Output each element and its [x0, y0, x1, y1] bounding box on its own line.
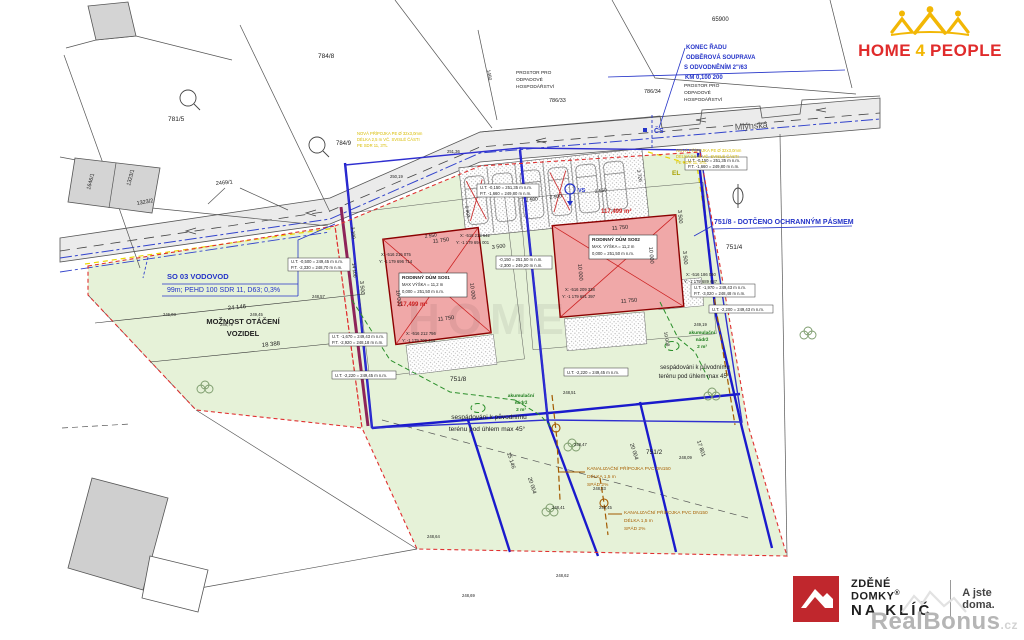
house-area-label: 117,499 m² [601, 208, 631, 215]
note-line: S ODVODNĚNÍM 2"/63 [684, 63, 748, 71]
note-line: terénu pod úhlem max 45° [449, 425, 526, 433]
note-line: DÉLKA 1,5 m [587, 473, 616, 480]
elevation-line: U.T. -1,970 = 249,43 m n.m. [694, 285, 746, 290]
note-line: ODBĚROVÁ SOUPRAVA [686, 53, 756, 61]
note-line: SPÁD 2% [624, 525, 646, 532]
elevation-line: P.T. -3,020 = 248,48 m n.m. [694, 291, 745, 296]
note-line: HOSPODÁŘSTVÍ [684, 95, 723, 103]
roof-icon [793, 576, 839, 622]
note-line: nádrž [696, 337, 709, 343]
note-line: HOSPODÁŘSTVÍ [516, 82, 555, 90]
note-line: ODPADOVÉ [516, 76, 543, 83]
note-line: akumulační [689, 330, 716, 336]
prostor-note-1: PROSTOR PRO ODPADOVÉ HOSPODÁŘSTVÍ [516, 70, 555, 90]
spot-elevation: 248,57 [312, 294, 325, 299]
note-line: terénu pod úhlem max 45° [659, 374, 730, 380]
parcel-label: 786/33 [549, 98, 566, 104]
house-spec: 0,000 = 251,50 m n.m. [592, 251, 634, 256]
coordinate-label: Y: -1 179 694 001 [456, 240, 490, 245]
logo-word-people: PEOPLE [930, 41, 1002, 60]
spot-elevation: 248,45 [599, 505, 612, 510]
note-line: 99m; PEHD 100 SDR 11, D63; 0,3% [167, 287, 280, 294]
elevation-line: -2,300 = 249,20 m n.m. [499, 263, 542, 268]
parcel-label: 2469/1 [216, 180, 233, 187]
parcel-label: 781/5 [168, 116, 185, 123]
logo-word-home: HOME [858, 41, 911, 60]
terrace-so02 [564, 312, 646, 351]
note-line: akumulační [508, 393, 535, 399]
coordinate-label: Y: -1 179 689 687 [684, 279, 718, 284]
note-line: NOVÁ PŘÍPOJKA PE Ø 32x3,0mm [676, 148, 742, 153]
elevation-line: U.T. -1,670 = 249,43 m n.m. [332, 334, 384, 339]
house-spec: MAX. VÝŠKA = 11,2 m [592, 244, 635, 249]
elevation-line: U.T. -0,500 = 249,45 m n.m. [291, 259, 343, 264]
coordinate-label: X: -516 215 075 [381, 252, 411, 257]
note-line: PE SDR 11, 3TL [357, 143, 388, 148]
spot-elevation: 248,51 [563, 390, 576, 395]
elevation-line: P.T. -1,660 = 249,80 m n.m. [480, 191, 531, 196]
cs-label: ČS [654, 126, 664, 135]
parcel-label: 784/9 [336, 141, 352, 147]
logo-word-4: 4 [916, 41, 926, 60]
parcel-label: 65900 [712, 17, 729, 23]
spot-elevation: 248,41 [552, 505, 565, 510]
parcel-label: 786/34 [644, 89, 661, 95]
coordinate-label: X: -516 209 338 [565, 287, 595, 292]
note-line: DÉLKA 2,5 m VČ. SVISLÉ ČÁSTI [676, 154, 739, 159]
prostor-note-2: PROSTOR PRO ODPADOVÉ HOSPODÁŘSTVÍ [684, 83, 723, 103]
note-line: ODPADOVÉ [684, 89, 711, 96]
spot-elevation: 248,64 [427, 534, 440, 539]
home4people-logo[interactable]: HOME 4 PEOPLE [850, 6, 1010, 61]
elevation-line: -0,150 = 251,50 m n.m. [499, 257, 542, 262]
parcel-label: 784/8 [318, 53, 335, 60]
note-line: DÉLKA 1,5 m [624, 517, 653, 524]
note-line: PROSTOR PRO [684, 83, 720, 89]
house-spec: 0,000 = 251,50 m n.m. [402, 289, 444, 294]
note-line: PROSTOR PRO [516, 70, 552, 76]
coordinate-label: X: -516 186 060 [686, 272, 716, 277]
elevation-line: P.T. -2,330 = 248,70 m n.m. [291, 265, 342, 270]
realbonus-watermark: RealBonus.cz [871, 608, 1018, 636]
elevation-line: U.T. -2,200 = 249,43 m n.m. [712, 307, 764, 312]
el-label: EL [672, 170, 680, 177]
note-line: DÉLKA 2,5 m VČ. SVISLÉ ČÁSTI [357, 137, 420, 142]
note-line: KONEC ŘADU [686, 43, 727, 51]
note-line: 2 m³ [516, 407, 526, 413]
note-line: 2 m³ [697, 344, 707, 350]
spot-elevation: 250,19 [390, 174, 403, 179]
brand-zdene: ZDĚNÉ [851, 578, 891, 590]
elevation-line: U.T. -0,150 = 251,35 m n.m. [480, 185, 532, 190]
nova-pripojka-note-1: NOVÁ PŘÍPOJKA PE Ø 32x3,0mm DÉLKA 2,5 m … [357, 131, 423, 148]
dimension-label: 3 500 [358, 281, 365, 295]
note-line: sespádováni k původnímu [451, 413, 527, 421]
dimension-label: 3 500 [681, 251, 688, 265]
note-line: SPÁD 2% [587, 481, 609, 488]
note-line: MOŽNOST OTÁČENÍ [206, 317, 280, 326]
building-outline-bottomleft [142, 556, 208, 612]
coordinate-label: X: -516 213 642 [460, 233, 490, 238]
realbonus-name: RealBonus [871, 608, 1001, 635]
vs-label: VS [578, 188, 586, 194]
house-spec: MAX VÝŠKA = 11,2 m [402, 282, 444, 287]
note-line: PE SDR 11, 3TL [676, 160, 707, 165]
parcel-label: 751/8 [450, 376, 467, 383]
site-plan-page: U.T. -0,500 = 249,45 m n.m. P.T. -2,330 … [0, 0, 1024, 640]
parcel-label: 1460 [485, 69, 493, 81]
spot-elevation: 248,69 [462, 593, 475, 598]
green-parcel-left [88, 226, 362, 428]
note-line: NOVÁ PŘÍPOJKA PE Ø 32x3,0mm [357, 131, 423, 136]
parcel-label: 751/2 [646, 449, 663, 456]
realbonus-tld: .cz [1000, 618, 1018, 632]
elevation-line: U.T. -2,220 = 249,45 m n.m. [335, 373, 387, 378]
watermark-text: HOME [408, 295, 572, 344]
dotceno-note: 751/8 - DOTČENO OCHRANNÝM PÁSMEM [714, 217, 854, 226]
spot-elevation: 246,03 [163, 312, 176, 317]
site-plan-svg: U.T. -0,500 = 249,45 m n.m. P.T. -2,330 … [0, 0, 1024, 640]
crown-icon [886, 6, 974, 36]
spot-elevation: 248,09 [679, 455, 692, 460]
note-line: KM 0,100 200 [685, 75, 723, 81]
coordinate-label: Y: -1 179 696 714 [379, 259, 413, 264]
spot-elevation: 248,47 [574, 442, 587, 447]
note-line: VOZIDEL [227, 329, 260, 338]
spot-elevation: 248,62 [556, 573, 569, 578]
elevation-line: P.T. -2,920 = 248,18 m n.m. [332, 340, 383, 345]
konec-radu-note: KONEC ŘADU ODBĚROVÁ SOUPRAVA S ODVODNĚNÍ… [684, 43, 756, 81]
parcel-label: 751/4 [726, 244, 743, 251]
note-line: nádrž [515, 400, 528, 406]
dimension-label: 3 500 [676, 210, 683, 224]
note-line: sespádováni k původnímu [660, 364, 730, 371]
elevation-line: U.T. -2,220 = 249,45 m n.m. [567, 370, 619, 375]
building-topleft [88, 2, 136, 40]
spot-elevation: 251,36 [447, 149, 460, 154]
spot-elevation: 249,19 [694, 322, 707, 327]
note-line: SO 03 VODOVOD [167, 272, 229, 281]
